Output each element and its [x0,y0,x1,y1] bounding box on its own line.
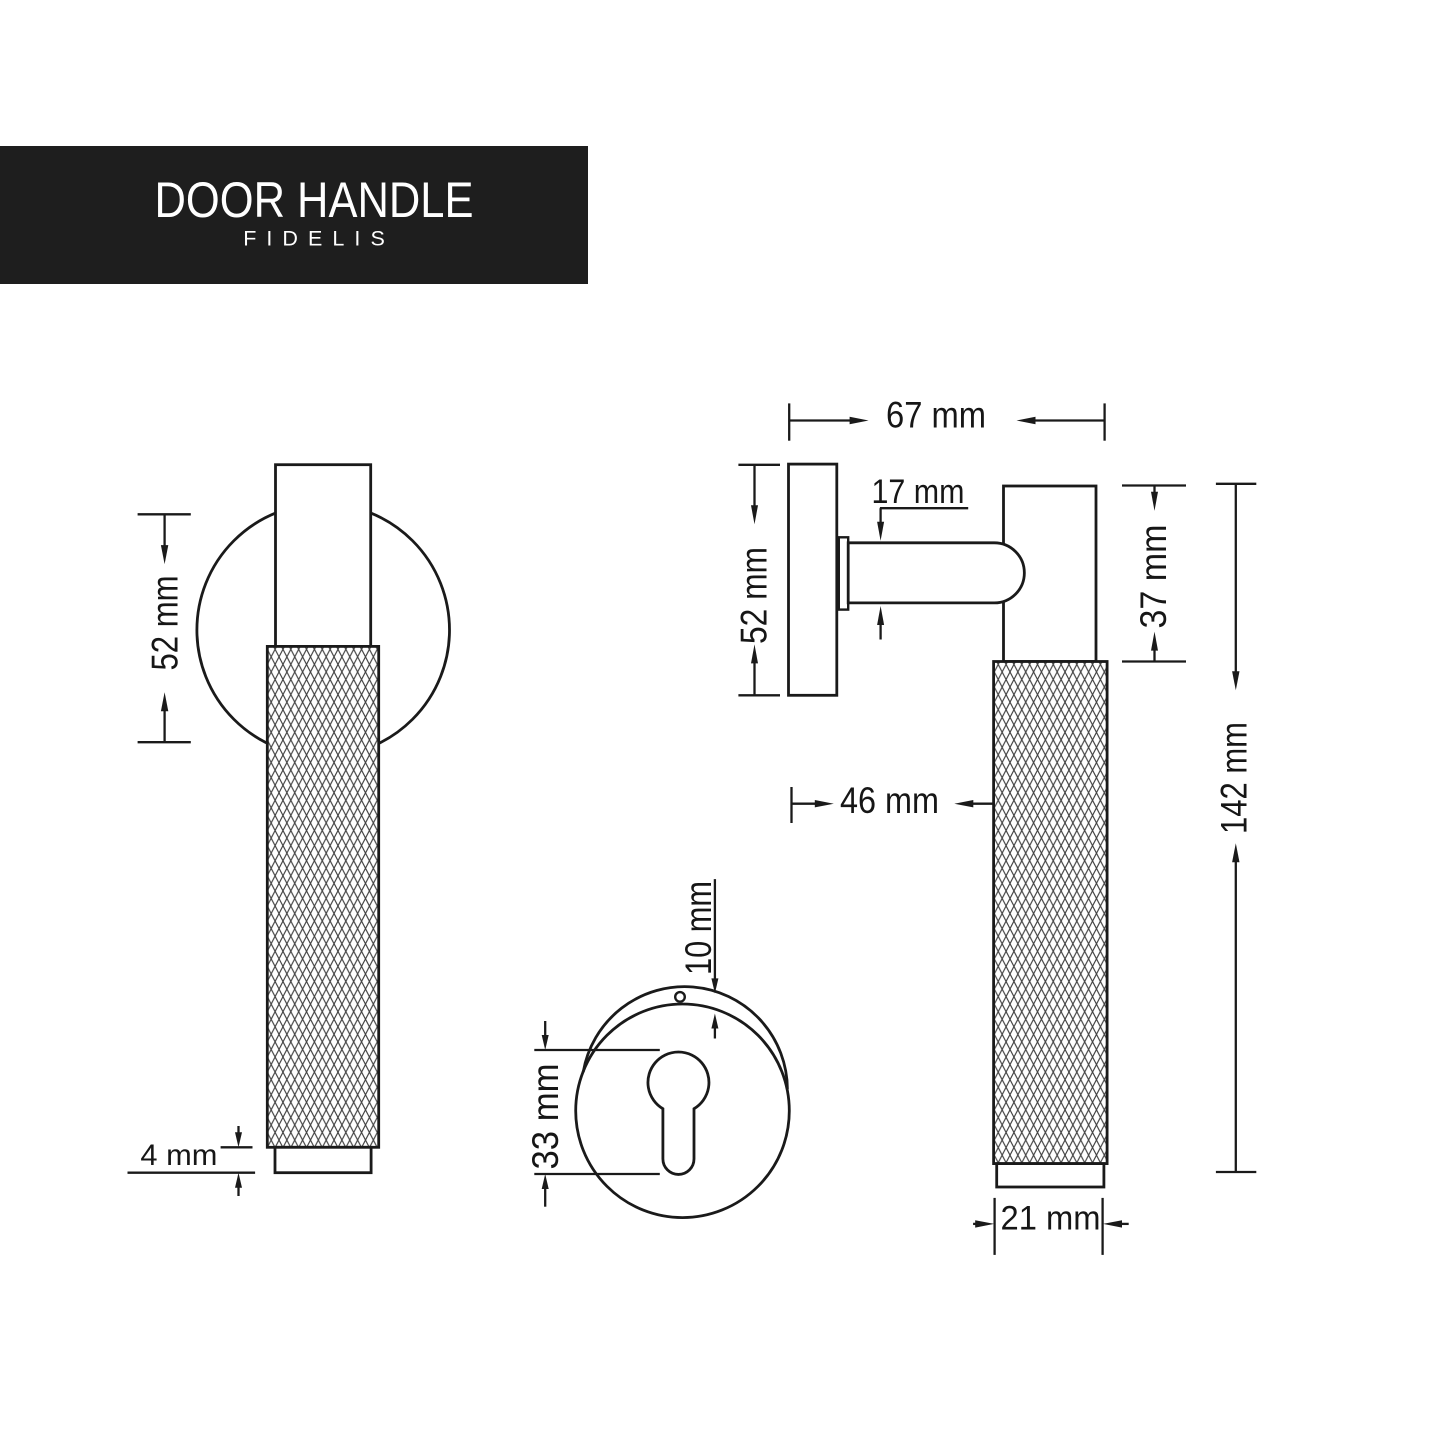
svg-text:DOOR HANDLE: DOOR HANDLE [155,172,474,228]
svg-text:52 mm: 52 mm [734,547,775,644]
svg-text:142 mm: 142 mm [1214,722,1255,834]
svg-text:17 mm: 17 mm [872,473,965,511]
svg-text:21 mm: 21 mm [1001,1199,1101,1237]
svg-text:67 mm: 67 mm [886,394,986,435]
svg-text:52 mm: 52 mm [145,576,186,671]
svg-text:37 mm: 37 mm [1133,525,1174,629]
svg-text:33 mm: 33 mm [525,1064,566,1170]
svg-text:46 mm: 46 mm [840,780,939,821]
svg-text:10 mm: 10 mm [678,881,719,975]
svg-text:4 mm: 4 mm [140,1139,217,1172]
